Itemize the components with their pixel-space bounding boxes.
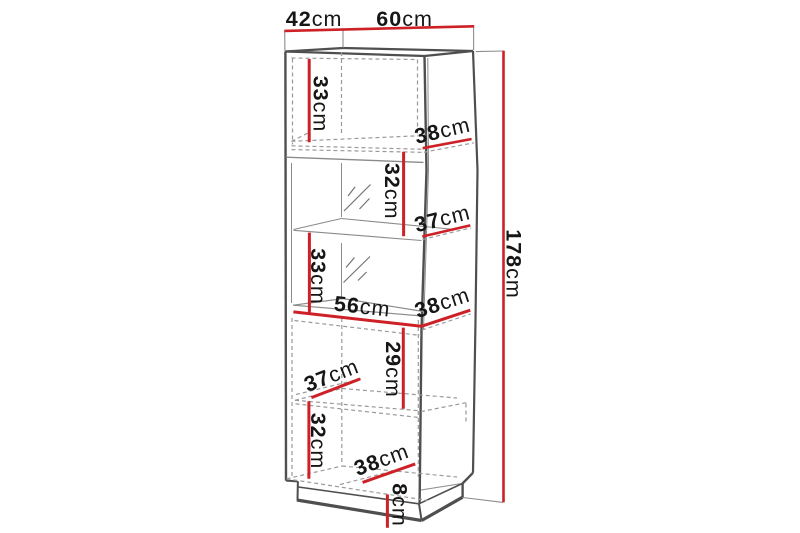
svg-text:29cm: 29cm — [381, 341, 405, 398]
svg-text:32cm: 32cm — [306, 413, 330, 470]
svg-text:32cm: 32cm — [380, 163, 404, 220]
svg-text:42cm: 42cm — [286, 7, 343, 31]
svg-text:60cm: 60cm — [376, 7, 433, 31]
svg-text:178cm: 178cm — [501, 229, 525, 299]
svg-text:8cm: 8cm — [388, 483, 412, 527]
svg-text:33cm: 33cm — [309, 76, 333, 133]
svg-text:33cm: 33cm — [306, 248, 330, 305]
